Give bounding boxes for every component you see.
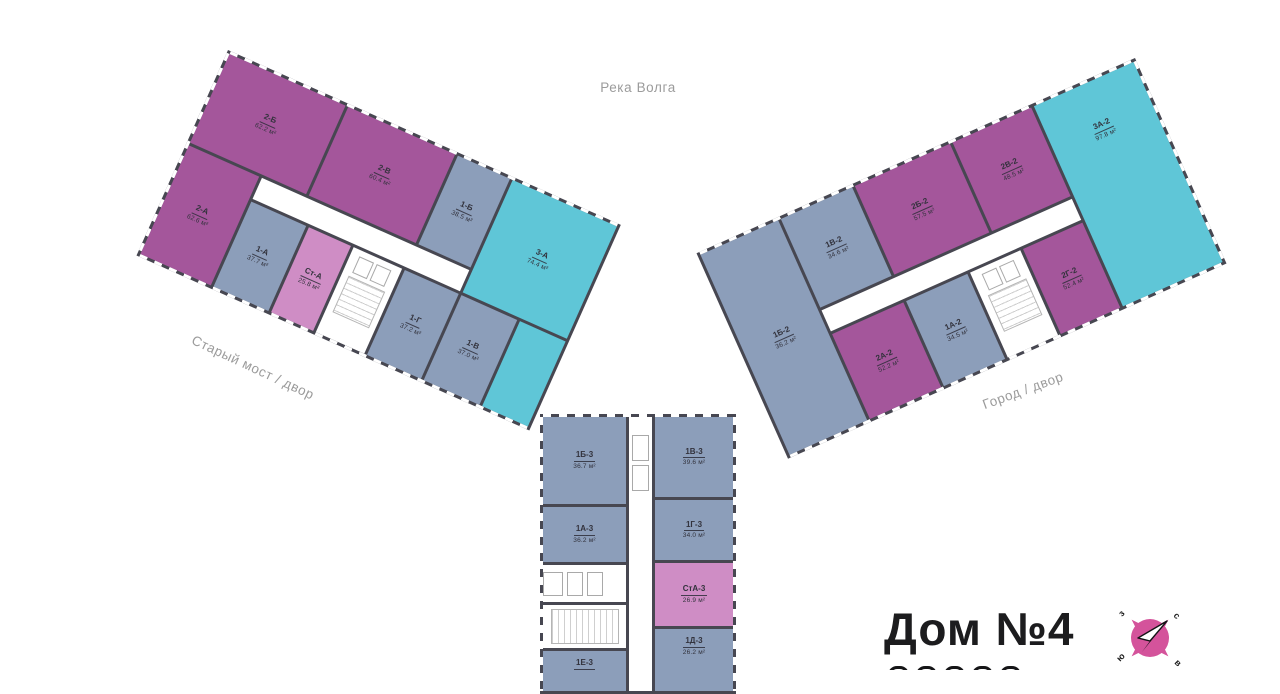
compass-letter-east: в [1173, 657, 1184, 668]
apartment-area: 97.8 м² [1095, 127, 1118, 143]
apartment-label: 1А-3 [574, 525, 595, 536]
apartment-area: 34.5 м² [946, 328, 969, 344]
apartment-st-a-3[interactable]: СтА-326.9 м² [655, 563, 733, 626]
apartment-label: СтА-3 [681, 585, 708, 596]
compass-letter-west: з [1116, 608, 1127, 619]
wing-left: 2-Б62.2 м² 2-В60.4 м² 1-Б38.5 м² 3-А74.4… [136, 50, 620, 430]
elevator-box [543, 572, 563, 596]
apartment-area: 37.0 м² [456, 348, 479, 364]
wing-bottom: 1Б-336.7 м² 1А-336.2 м² 1Е-3 1В-339.6 м²… [540, 414, 736, 694]
floorplan-page: { "palette": { "two_room": "#a4569b", "o… [0, 0, 1280, 670]
apartment-label: 1Д-3 [683, 637, 704, 648]
apartment-1b-3[interactable]: 1Б-336.7 м² [543, 417, 626, 504]
apartment-label: 2-В [374, 163, 394, 180]
apartment-area: 36.2 м² [573, 537, 596, 544]
apartment-1g-3[interactable]: 1Г-334.0 м² [655, 500, 733, 560]
building-title: Дом №4 [884, 602, 1075, 656]
apartment-area: 26.2 м² [683, 649, 706, 656]
apartment-label: 2Б-2 [909, 196, 933, 215]
apartment-area: 60.4 м² [368, 173, 391, 189]
compass-letter-south: ю [1114, 651, 1127, 664]
elevator-box [567, 572, 583, 596]
apartment-area: 62.6 м² [186, 213, 209, 229]
apartment-area: 39.6 м² [683, 459, 706, 466]
apartment-area: 34.6 м² [827, 245, 850, 261]
river-label: Река Волга [553, 80, 723, 95]
apartment-area: 57.5 м² [913, 207, 936, 223]
apartment-label: 1-Г [405, 313, 424, 329]
apartment-label: 2Г-2 [1059, 266, 1082, 284]
apartment-label: 2А-2 [873, 348, 897, 367]
apartment-area: 37.7 м² [246, 254, 269, 270]
apartment-label: 2В-2 [998, 156, 1022, 175]
apartment-label: 3-А [531, 247, 551, 264]
apartment-label: 1Г-3 [684, 521, 704, 532]
apartment-label: 1В-2 [823, 234, 847, 253]
windows-strip [543, 414, 733, 417]
cropped-text-sliver [888, 666, 1068, 670]
apartment-label: 2-А [192, 203, 212, 220]
apartment-1v-3[interactable]: 1В-339.6 м² [655, 417, 733, 497]
apartment-label: 1-В [462, 338, 482, 355]
apartment-area: 36.2 м² [775, 335, 798, 351]
windows-strip [733, 417, 736, 691]
elevator-box [999, 260, 1021, 283]
apartment-area: 74.4 м² [526, 257, 549, 273]
apartment-area: 25.8 м² [297, 277, 320, 293]
windows-strip [540, 417, 543, 691]
apartment-1e-3[interactable]: 1Е-3 [543, 651, 626, 691]
apartment-area: 62.2 м² [254, 122, 277, 138]
apartment-1a-3[interactable]: 1А-336.2 м² [543, 507, 626, 562]
apartment-1d-3[interactable]: 1Д-326.2 м² [655, 629, 733, 691]
apartment-label: 1Б-3 [574, 451, 595, 462]
apartment-area: 48.5 м² [1002, 167, 1025, 183]
stairs [551, 609, 619, 644]
elevator-bank [543, 565, 626, 602]
apartment-label: 1-А [252, 244, 272, 261]
left-street-label: Старый мост / двор [168, 323, 337, 413]
elevator-box [587, 572, 603, 596]
wing-right: 1Б-236.2 м² 1В-234.6 м² 2Б-257.5 м² 2В-2… [696, 58, 1226, 459]
shaft-box [632, 465, 649, 491]
compass: з с ю в [1112, 600, 1188, 676]
apartment-area: 26.9 м² [683, 597, 706, 604]
apartment-label: 1А-2 [942, 317, 966, 336]
apartment-label: 3А-2 [1090, 116, 1114, 135]
elevator-box [369, 264, 391, 287]
apartment-label: Ст-А [300, 266, 325, 285]
apartment-area: 52.4 м² [1062, 276, 1085, 292]
stair-core [543, 605, 626, 648]
apartment-label: 2-Б [260, 112, 280, 129]
apartment-area: 52.2 м² [877, 358, 900, 374]
apartment-label: 1Е-3 [574, 659, 595, 670]
shaft [629, 417, 652, 691]
compass-letter-north: с [1172, 610, 1183, 621]
apartment-label: 1Б-2 [770, 325, 794, 344]
shaft-box [632, 435, 649, 461]
apartment-area: 34.0 м² [683, 532, 706, 539]
apartment-area: 37.2 м² [399, 322, 422, 338]
apartment-area: 38.5 м² [450, 209, 473, 225]
apartment-area: 36.7 м² [573, 463, 596, 470]
apartment-label: 1-Б [456, 200, 476, 217]
apartment-label: 1В-3 [683, 448, 704, 459]
